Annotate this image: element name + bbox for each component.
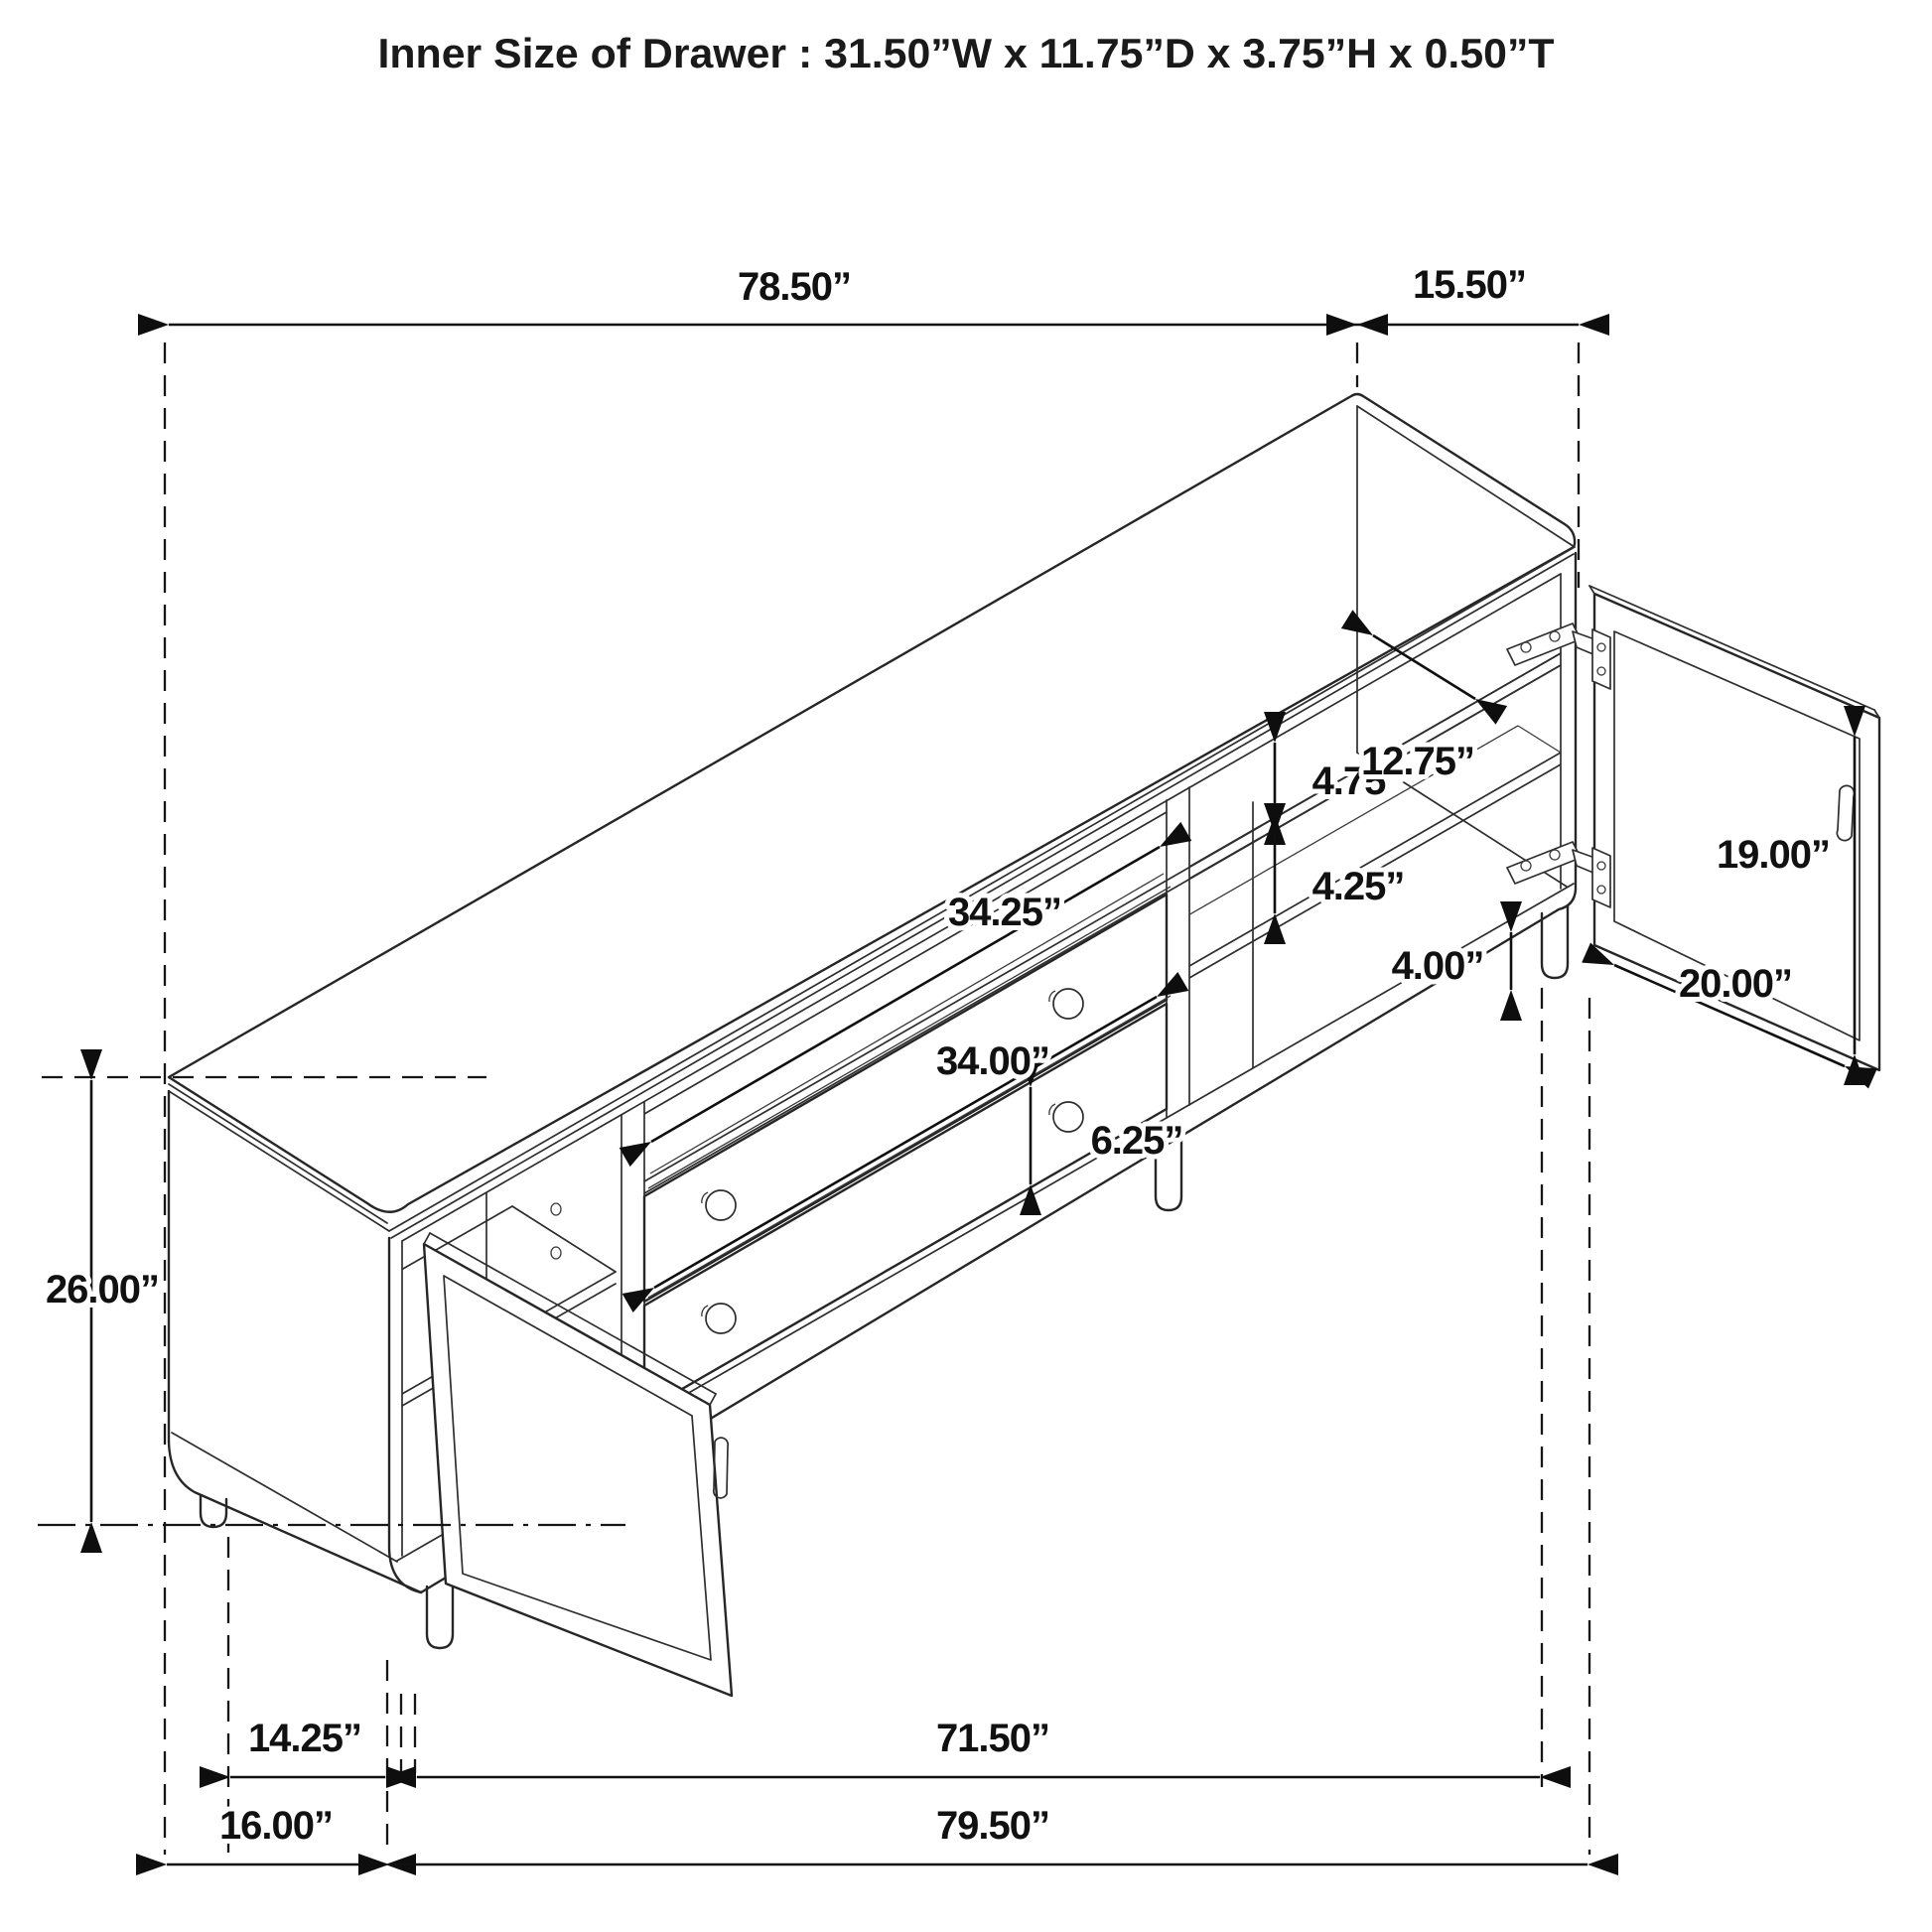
dim-label-overall-width: 78.50” [738, 265, 851, 309]
dim-label-media-opening-width: 34.25” [948, 891, 1061, 934]
page-title: Inner Size of Drawer : 31.50”W x 11.75”D… [378, 30, 1555, 76]
dim-label-floor-span-inner: 71.50” [936, 1717, 1049, 1760]
diagram-page: 78.50” 15.50” 26.00” 14.25” 71.50” 16.00… [0, 0, 1932, 1932]
dim-label-depth: 15.50” [1413, 263, 1526, 307]
dim-label-door-height: 19.00” [1717, 833, 1830, 877]
dim-line-media-opening-width [651, 847, 1160, 1142]
dimension-diagram: 78.50” 15.50” 26.00” 14.25” 71.50” 16.00… [0, 0, 1932, 1932]
dimension-labels: 78.50” 15.50” 26.00” 14.25” 71.50” 16.00… [46, 263, 1830, 1848]
dim-label-drawer-front-height: 6.25” [1091, 1119, 1183, 1163]
dim-label-left-leg-span: 14.25” [248, 1717, 361, 1760]
cabinet-body [169, 406, 1576, 1592]
dim-label-drawer-width: 34.00” [936, 1039, 1049, 1083]
dim-label-floor-span-outer: 79.50” [936, 1804, 1049, 1848]
left-cane-door [424, 1233, 732, 1696]
dim-label-left-section-width: 16.00” [219, 1804, 333, 1848]
dim-label-lower-opening-height: 4.25” [1312, 865, 1405, 908]
cabinet-top [169, 394, 1575, 1238]
dim-line-shelf-depth [1373, 635, 1475, 699]
dim-label-shelf-depth: 12.75” [1361, 740, 1474, 783]
dim-label-overall-height: 26.00” [46, 1268, 159, 1311]
dim-label-door-width: 20.00” [1679, 962, 1792, 1006]
cabinet-legs [201, 905, 1568, 1648]
dim-label-leg-height: 4.00” [1392, 944, 1484, 988]
